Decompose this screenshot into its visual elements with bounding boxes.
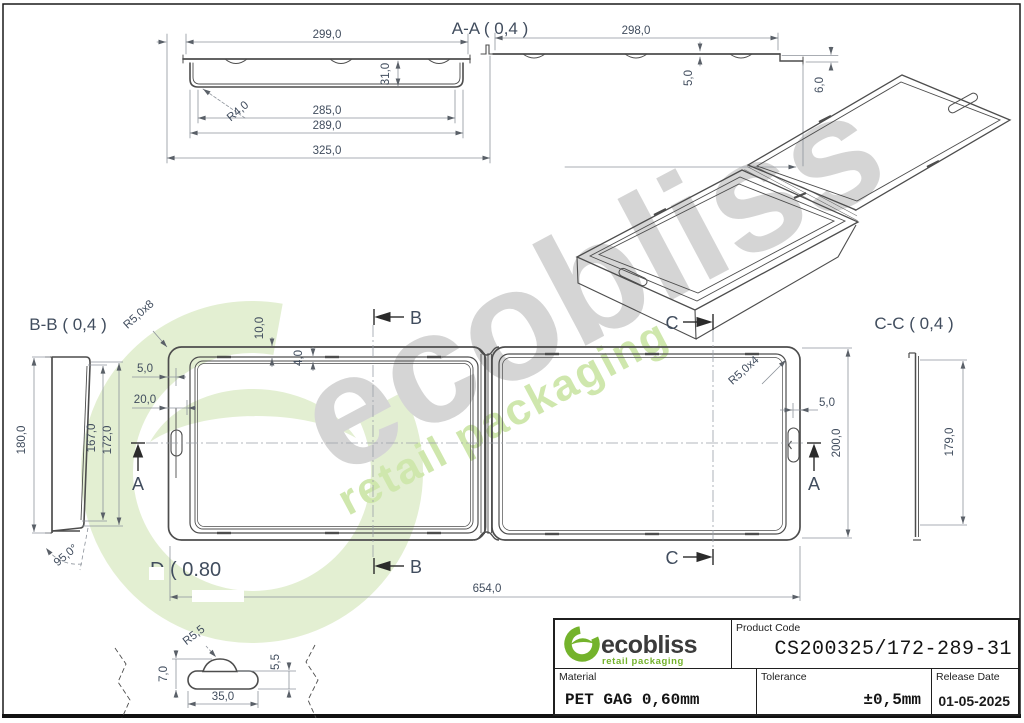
section-cc-title: C-C ( 0,4 ) bbox=[874, 314, 953, 333]
marker-c-bottom: C bbox=[666, 548, 679, 568]
technical-drawing-canvas: ecobliss retail packaging A-A ( 0,4 ) bbox=[0, 0, 1024, 723]
dim-172: 172,0 bbox=[102, 426, 114, 455]
dim-r5x4: R5,0x4 bbox=[726, 354, 762, 388]
marker-c-top: C bbox=[666, 313, 679, 333]
dim-285: 285,0 bbox=[313, 105, 342, 117]
product-code-label: Product Code bbox=[732, 620, 1018, 634]
dim-55: 5,5 bbox=[270, 654, 282, 670]
release-date-label: Release Date bbox=[932, 669, 1018, 683]
dim-654: 654,0 bbox=[473, 583, 502, 595]
marker-b-bottom: B bbox=[410, 557, 422, 577]
watermark-brand: ecobliss bbox=[269, 56, 910, 508]
dim-5-lid: 5,0 bbox=[683, 70, 695, 86]
dim-200: 200,0 bbox=[831, 429, 843, 458]
ecobliss-logo-icon: ecobliss retail packaging bbox=[561, 621, 729, 667]
dim-4: 4,0 bbox=[293, 350, 305, 366]
dim-180: 180,0 bbox=[16, 426, 28, 455]
dim-r4: R4,0 bbox=[225, 99, 251, 124]
dim-35: 35,0 bbox=[212, 691, 234, 703]
marker-b-top: B bbox=[410, 308, 422, 328]
dim-31: 31,0 bbox=[380, 63, 392, 85]
dim-10: 10,0 bbox=[254, 317, 266, 339]
release-date-value: 01-05-2025 bbox=[932, 683, 1018, 709]
tolerance-label: Tolerance bbox=[757, 669, 931, 683]
material-label: Material bbox=[555, 669, 756, 683]
section-aa-title: A-A ( 0,4 ) bbox=[452, 19, 529, 38]
product-code-value: CS200325/172-289-31 bbox=[732, 634, 1018, 661]
dim-7: 7,0 bbox=[158, 666, 170, 682]
dim-5-right: 5,0 bbox=[819, 397, 835, 409]
dim-289: 289,0 bbox=[313, 120, 342, 132]
dim-95deg: 95,0° bbox=[52, 542, 80, 569]
drawing-sheet: ecobliss retail packaging A-A ( 0,4 ) bbox=[0, 0, 1024, 723]
release-date-cell: Release Date 01-05-2025 bbox=[932, 669, 1018, 714]
plan-right-hang-slot bbox=[788, 428, 799, 462]
dim-r5x8: R5,0x8 bbox=[121, 298, 156, 331]
dim-167: 167,0 bbox=[86, 424, 98, 453]
occlusion-box bbox=[149, 567, 164, 580]
dim-298: 298,0 bbox=[622, 25, 651, 37]
dim-6-lid: 6,0 bbox=[814, 77, 826, 93]
material-cell: Material PET GAG 0,60mm bbox=[555, 669, 757, 714]
product-code-cell: Product Code CS200325/172-289-31 bbox=[732, 620, 1018, 668]
section-bb-title: B-B ( 0,4 ) bbox=[29, 315, 106, 334]
logo-tagline-text: retail packaging bbox=[602, 656, 684, 667]
dim-20: 20,0 bbox=[134, 394, 156, 406]
title-block: ecobliss retail packaging Product Code C… bbox=[553, 618, 1020, 716]
section-cc-view: C-C ( 0,4 ) 179,0 bbox=[874, 314, 967, 540]
material-value: PET GAG 0,60mm bbox=[555, 683, 756, 709]
dim-325: 325,0 bbox=[313, 145, 342, 157]
marker-a-left: A bbox=[132, 474, 144, 494]
tolerance-cell: Tolerance ±0,5mm bbox=[757, 669, 932, 714]
dim-5-left: 5,0 bbox=[137, 363, 153, 375]
marker-a-right: A bbox=[808, 474, 820, 494]
dim-179: 179,0 bbox=[944, 428, 956, 457]
logo-brand-text: ecobliss bbox=[601, 631, 697, 659]
dim-299: 299,0 bbox=[313, 29, 342, 41]
tolerance-value: ±0,5mm bbox=[757, 683, 931, 709]
company-logo: ecobliss retail packaging bbox=[555, 620, 732, 668]
